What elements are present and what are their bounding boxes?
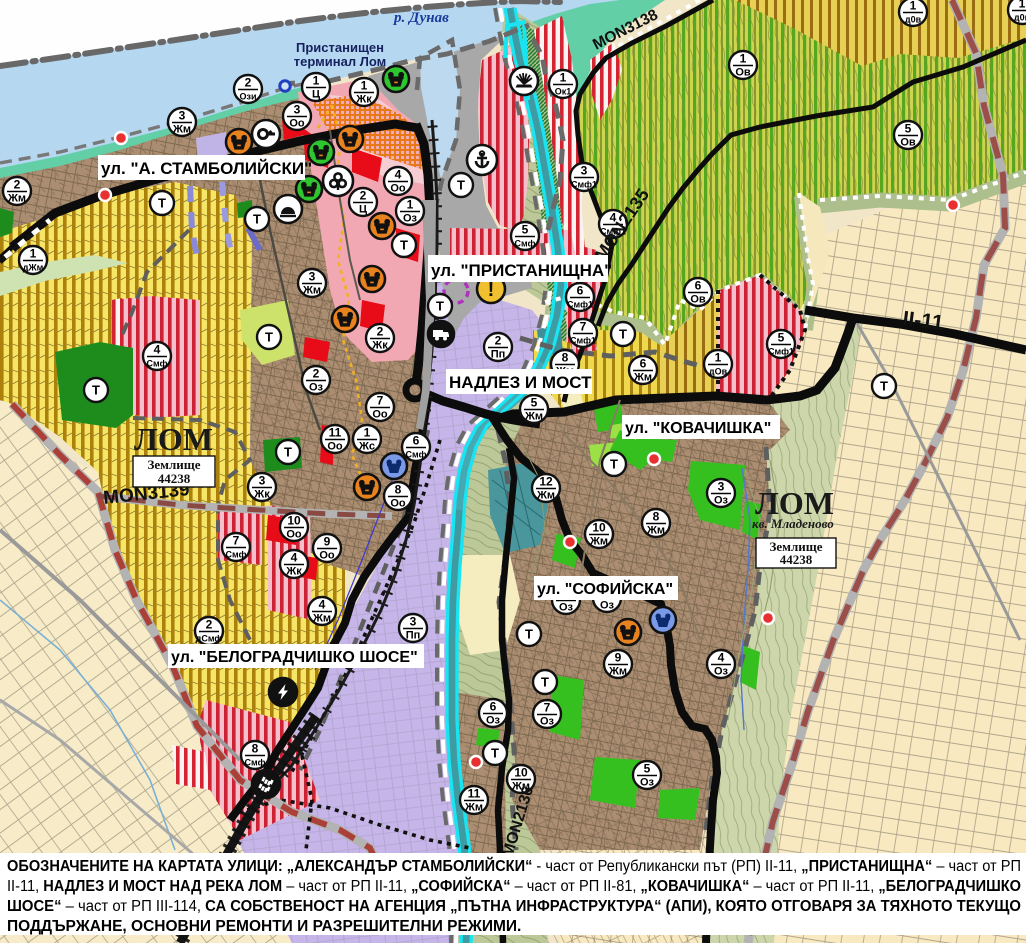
svg-text:8: 8 <box>395 483 402 497</box>
svg-text:Ов: Ов <box>900 137 916 149</box>
svg-text:Ов: Ов <box>690 294 706 306</box>
svg-text:Жм: Жм <box>633 372 652 384</box>
svg-text:Смф1: Смф1 <box>570 336 596 346</box>
svg-text:8: 8 <box>653 510 660 524</box>
svg-text:Жм: Жм <box>524 411 543 423</box>
svg-text:Смф: Смф <box>147 359 168 369</box>
svg-text:5: 5 <box>531 396 538 410</box>
svg-text:Жм: Жм <box>646 525 665 537</box>
svg-text:Смф: Смф <box>245 758 266 768</box>
svg-text:4: 4 <box>395 168 402 182</box>
svg-text:Жк: Жк <box>371 340 388 352</box>
svg-text:1: 1 <box>407 198 414 212</box>
svg-text:1: 1 <box>361 79 368 93</box>
svg-text:Ц: Ц <box>359 204 367 216</box>
svg-text:Ок1: Ок1 <box>555 87 572 97</box>
svg-text:Оз: Оз <box>559 602 574 614</box>
svg-text:II-11, НАДЛЕЗ И МОСТ НАД РЕКА: II-11, НАДЛЕЗ И МОСТ НАД РЕКА ЛОМ – част… <box>7 877 1021 895</box>
svg-text:7: 7 <box>233 534 240 548</box>
svg-text:4: 4 <box>718 651 725 665</box>
svg-text:Оо: Оо <box>286 529 302 541</box>
svg-text:6: 6 <box>413 434 420 448</box>
svg-text:Оз: Оз <box>540 716 555 728</box>
svg-text:4: 4 <box>291 551 298 565</box>
svg-text:3: 3 <box>718 480 725 494</box>
svg-text:Т: Т <box>491 746 499 761</box>
svg-text:Жм: Жм <box>536 490 555 502</box>
svg-text:НАДЛЕЗ И МОСТ: НАДЛЕЗ И МОСТ <box>449 373 592 392</box>
svg-text:9: 9 <box>324 535 331 549</box>
svg-text:1: 1 <box>364 426 371 440</box>
svg-text:4: 4 <box>154 343 161 357</box>
svg-text:1: 1 <box>1019 0 1026 11</box>
svg-text:5: 5 <box>522 223 529 237</box>
svg-text:Оо: Оо <box>289 118 305 130</box>
svg-text:6: 6 <box>490 700 497 714</box>
svg-text:Оо: Оо <box>390 183 406 195</box>
svg-text:ул. "КОВАЧИШКА": ул. "КОВАЧИШКА" <box>625 420 771 437</box>
svg-text:Т: Т <box>880 379 888 394</box>
svg-text:ПОДДЪРЖАНЕ, ОСНОВНИ РЕМОНТИ И: ПОДДЪРЖАНЕ, ОСНОВНИ РЕМОНТИ И РАЗРЕШИТЕЛ… <box>7 918 521 935</box>
svg-text:Смф: Смф <box>406 450 427 460</box>
svg-text:Жм: Жм <box>589 536 608 548</box>
svg-text:7: 7 <box>377 394 384 408</box>
svg-text:Жк: Жк <box>285 566 302 578</box>
svg-text:Жм: Жм <box>302 285 321 297</box>
svg-text:Смф1: Смф1 <box>567 300 593 310</box>
svg-text:1: 1 <box>740 52 747 66</box>
svg-text:2: 2 <box>313 367 320 381</box>
svg-text:дСмф: дСмф <box>196 634 223 644</box>
svg-text:10: 10 <box>514 766 528 780</box>
svg-text:Т: Т <box>284 445 292 460</box>
svg-text:6: 6 <box>640 357 647 371</box>
svg-text:Пристанищентерминал Лом: Пристанищентерминал Лом <box>294 40 386 69</box>
svg-text:8: 8 <box>562 351 569 365</box>
svg-text:3: 3 <box>410 615 417 629</box>
svg-text:12: 12 <box>539 475 553 489</box>
svg-text:3: 3 <box>309 270 316 284</box>
svg-text:Оо: Оо <box>390 498 406 510</box>
svg-text:кв. Младеново: кв. Младеново <box>752 516 834 531</box>
svg-text:2: 2 <box>206 618 213 632</box>
svg-text:Оз: Оз <box>309 382 324 394</box>
svg-text:1: 1 <box>910 0 917 13</box>
svg-text:Оз: Оз <box>486 715 501 727</box>
svg-text:Жк: Жк <box>253 489 270 501</box>
svg-text:Жм: Жм <box>464 802 483 814</box>
svg-text:3: 3 <box>179 109 186 123</box>
svg-text:Пп: Пп <box>406 630 421 642</box>
svg-text:Т: Т <box>457 178 465 193</box>
svg-text:Т: Т <box>400 238 408 253</box>
svg-text:Жс: Жс <box>358 441 375 453</box>
svg-text:Т: Т <box>92 383 100 398</box>
svg-text:Т: Т <box>158 196 166 211</box>
svg-text:10: 10 <box>592 521 606 535</box>
svg-text:Т: Т <box>541 675 549 690</box>
svg-text:1: 1 <box>560 71 567 85</box>
svg-text:Оо: Оо <box>319 550 335 562</box>
svg-text:2: 2 <box>245 76 252 90</box>
svg-text:ОБОЗНАЧЕНИТЕ НА КАРТАТА УЛИЦИ:: ОБОЗНАЧЕНИТЕ НА КАРТАТА УЛИЦИ: „АЛЕКСАНД… <box>7 857 1021 875</box>
svg-text:!: ! <box>488 279 495 301</box>
svg-text:Ози: Ози <box>239 92 256 102</box>
svg-text:1: 1 <box>30 247 37 261</box>
svg-text:Т: Т <box>253 212 261 227</box>
svg-text:5: 5 <box>778 331 785 345</box>
svg-text:3: 3 <box>581 164 588 178</box>
svg-text:Оо: Оо <box>327 441 343 453</box>
svg-text:2: 2 <box>360 189 367 203</box>
svg-text:ул. "БЕЛОГРАДЧИШКО ШОСЕ": ул. "БЕЛОГРАДЧИШКО ШОСЕ" <box>171 649 418 666</box>
svg-text:Пп: Пп <box>491 349 506 361</box>
svg-text:дОв: дОв <box>709 367 728 377</box>
svg-text:Оз: Оз <box>403 213 418 225</box>
svg-text:Смф1: Смф1 <box>571 180 597 190</box>
svg-text:Жм: Жм <box>312 613 331 625</box>
svg-text:3: 3 <box>259 474 266 488</box>
svg-text:Оз: Оз <box>714 666 729 678</box>
svg-text:Жк: Жк <box>355 94 372 106</box>
svg-text:6: 6 <box>695 279 702 293</box>
svg-text:1: 1 <box>715 351 722 365</box>
svg-text:Ц: Ц <box>312 89 320 101</box>
svg-text:5: 5 <box>905 122 912 136</box>
svg-text:Жм: Жм <box>7 193 26 205</box>
svg-text:1: 1 <box>313 74 320 88</box>
svg-text:Смф1: Смф1 <box>768 347 794 357</box>
svg-text:Т: Т <box>436 299 444 314</box>
svg-text:7: 7 <box>580 320 587 334</box>
svg-text:Смф: Смф <box>226 550 247 560</box>
svg-text:4: 4 <box>319 598 326 612</box>
svg-text:Ов: Ов <box>735 67 751 79</box>
svg-text:Жм: Жм <box>172 124 191 136</box>
svg-text:3: 3 <box>294 103 301 117</box>
svg-text:Т: Т <box>265 330 273 345</box>
svg-text:ШОСЕ“ – част от РП III-114, СА: ШОСЕ“ – част от РП III-114, СА СОБСТВЕНО… <box>7 898 1021 915</box>
svg-text:Т: Т <box>525 627 533 642</box>
svg-text:8: 8 <box>252 742 259 756</box>
svg-text:2: 2 <box>14 178 21 192</box>
svg-text:Оо: Оо <box>372 409 388 421</box>
svg-text:ул. "СОФИЙСКА": ул. "СОФИЙСКА" <box>537 579 673 598</box>
svg-text:11: 11 <box>329 426 342 440</box>
svg-text:ул. "ПРИСТАНИЩНА": ул. "ПРИСТАНИЩНА" <box>431 261 612 280</box>
svg-text:Оз: Оз <box>714 495 729 507</box>
svg-text:ул. "А. СТАМБОЛИЙСКИ": ул. "А. СТАМБОЛИЙСКИ" <box>101 159 312 178</box>
svg-text:2: 2 <box>495 334 502 348</box>
svg-text:Т: Т <box>619 327 627 342</box>
svg-text:ЛОМ: ЛОМ <box>134 421 213 457</box>
svg-text:10: 10 <box>287 514 301 528</box>
svg-text:д0в: д0в <box>905 15 922 25</box>
svg-text:Жм: Жм <box>608 666 627 678</box>
svg-text:Оз: Оз <box>600 600 615 612</box>
svg-text:2: 2 <box>377 325 384 339</box>
svg-text:Т: Т <box>610 457 618 472</box>
svg-text:р. Дунав: р. Дунав <box>392 10 449 26</box>
svg-text:9: 9 <box>615 651 622 665</box>
svg-text:Оз: Оз <box>640 777 655 789</box>
svg-text:6: 6 <box>577 284 584 298</box>
svg-text:5: 5 <box>644 762 651 776</box>
svg-text:11: 11 <box>468 787 481 801</box>
svg-text:Смф: Смф <box>515 239 536 249</box>
svg-text:7: 7 <box>544 701 551 715</box>
svg-text:д0в: д0в <box>1014 13 1026 23</box>
svg-text:дЖм: дЖм <box>23 263 44 273</box>
